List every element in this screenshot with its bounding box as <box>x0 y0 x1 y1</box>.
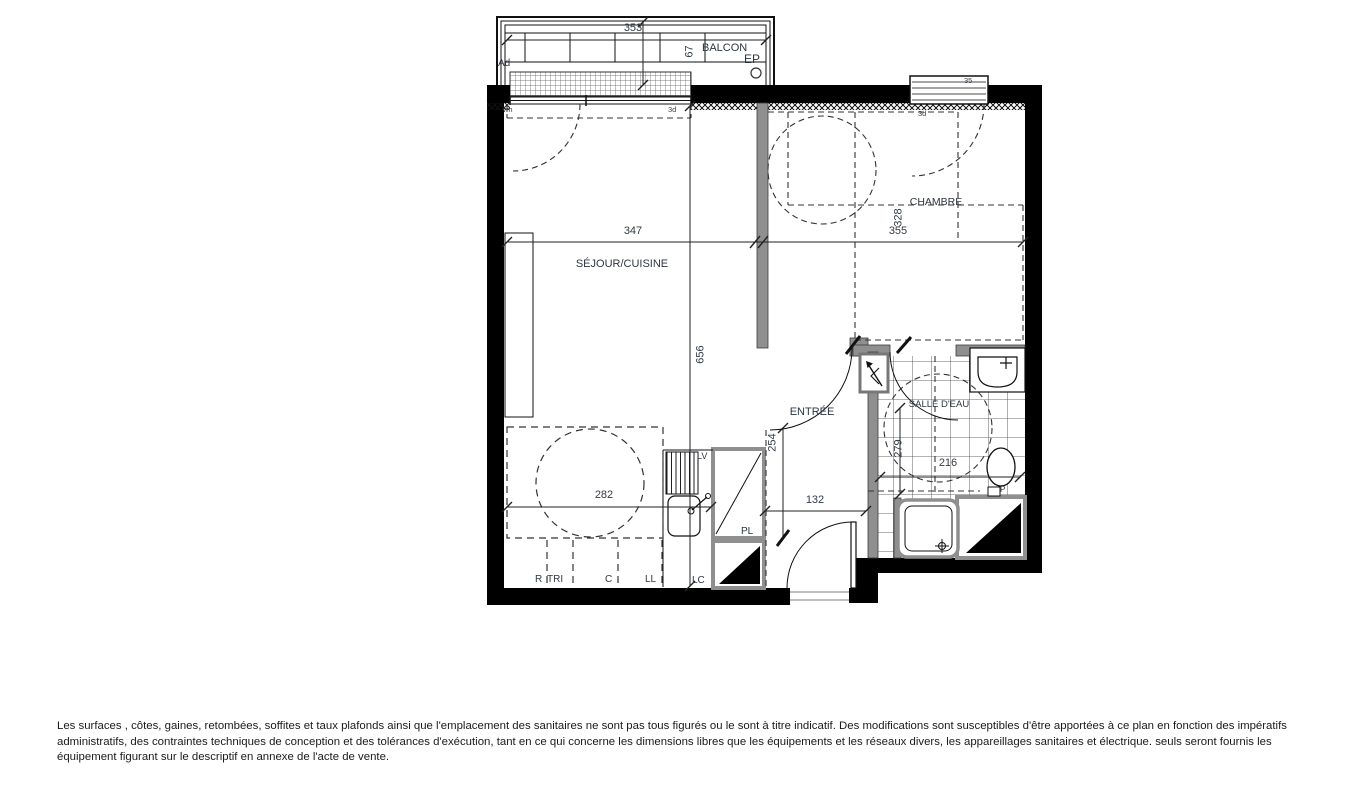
entry-threshold <box>790 592 849 600</box>
room-label-balcony: BALCON <box>702 43 747 54</box>
rainwater-pipe-icon <box>751 68 761 78</box>
living-window <box>510 95 691 106</box>
dim-entry-length: 254 <box>768 428 779 458</box>
label-code-left: wh <box>503 106 513 114</box>
balcony-floor-grating <box>510 72 691 96</box>
duct-lc <box>713 541 764 588</box>
shower-tray <box>898 500 958 557</box>
label-duct: LC <box>692 576 705 586</box>
floor-plan-page: BALCON EP Ad 353 67 35 wh 3d 3d SÉJOUR/C… <box>0 0 1347 800</box>
bathroom-shaft <box>957 497 1025 558</box>
bedroom-window <box>910 76 988 104</box>
label-bedroom-code: 3d <box>918 110 926 118</box>
label-code-right: 3d <box>668 106 676 114</box>
label-cooktop: C <box>605 575 612 585</box>
label-ep: EP <box>744 53 760 65</box>
label-recycling: TRI <box>547 575 563 585</box>
label-closet: PL <box>741 527 753 537</box>
label-wc: P <box>1000 486 1005 494</box>
room-label-bathroom: SALLE D'EAU <box>898 400 980 410</box>
label-ad: Ad <box>498 59 510 69</box>
dim-bathroom-width: 216 <box>928 458 968 469</box>
label-dishwasher: LV <box>697 452 707 461</box>
closet-pl <box>713 449 764 538</box>
floor-plan-drawing <box>0 0 1347 800</box>
dim-entry-width: 132 <box>793 495 837 506</box>
vent-duct-box <box>860 354 888 392</box>
bathroom-door-leaf <box>897 337 911 353</box>
entry-door-arc <box>787 522 853 588</box>
dim-bathroom-length: 279 <box>894 434 905 464</box>
disclaimer-text: Les surfaces , côtes, gaines, retombées,… <box>57 719 1310 766</box>
label-fridge: R <box>535 575 542 585</box>
entry-door-leaf <box>851 522 856 588</box>
label-washing-machine: LL <box>645 575 656 585</box>
entry-door-jamb-left <box>783 588 789 603</box>
entry-door-jamb-right <box>849 588 855 603</box>
living-wall-counter <box>505 233 533 417</box>
label-window-code: 35 <box>964 77 972 85</box>
dim-living-length: 656 <box>696 340 707 370</box>
room-label-entry: ENTRÉE <box>785 407 839 418</box>
dim-balcony-depth: 67 <box>685 40 696 64</box>
dim-living-width: 347 <box>613 226 653 237</box>
kitchen-sink-unit <box>663 450 713 587</box>
dim-kitchen-width: 282 <box>584 490 624 501</box>
room-label-bedroom: CHAMBRE <box>905 197 967 208</box>
dim-balcony-width: 353 <box>613 23 653 34</box>
washbasin <box>970 348 1025 392</box>
room-label-living-kitchen: SÉJOUR/CUISINE <box>572 259 672 270</box>
dim-bedroom-depth: 328 <box>894 203 905 233</box>
